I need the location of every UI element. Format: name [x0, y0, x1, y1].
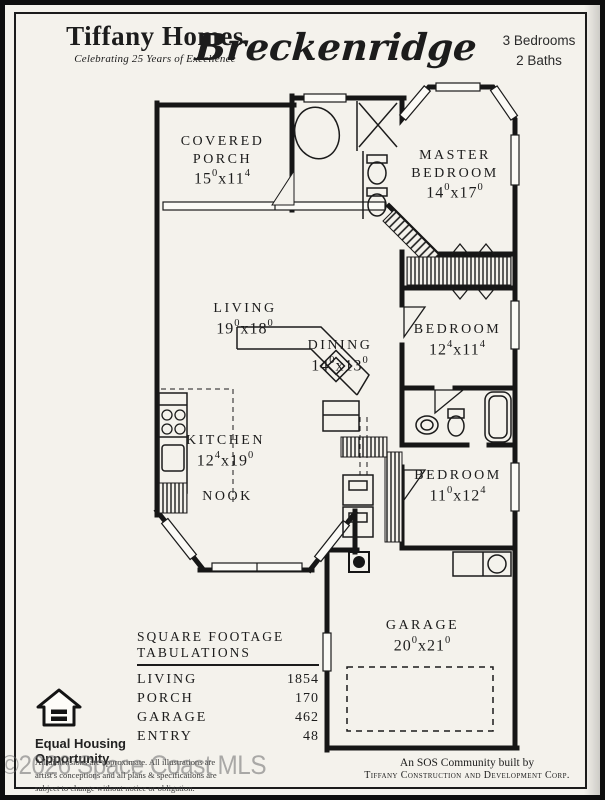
room-dimensions: 110x124 — [403, 486, 513, 505]
tub-icon — [289, 102, 345, 164]
room-dimensions: 200x210 — [365, 636, 480, 655]
room-dimensions: 190x180 — [185, 319, 305, 338]
builder-credit: An SOS Community built by Tiffany Constr… — [343, 757, 591, 781]
utility-closet — [453, 552, 511, 576]
table-row: GARAGE 462 — [137, 709, 319, 728]
disclaimer-line: subject to change without notice or obli… — [35, 782, 325, 795]
toilet-icon — [368, 162, 386, 184]
sink-icon — [416, 416, 438, 434]
master-bath-fixtures — [289, 101, 397, 219]
square-footage-table: SQUARE FOOTAGE TABULATIONS LIVING 1854 P… — [137, 629, 319, 747]
table-row: LIVING 1854 — [137, 671, 319, 690]
room-label-master-bedroom: MASTER BEDROOM 140x170 — [390, 147, 520, 202]
entry-column — [349, 552, 369, 572]
room-label-living: LIVING 190x180 — [185, 300, 305, 338]
room-dimensions: 124x190 — [163, 451, 288, 470]
room-label-kitchen: KITCHEN 124x190 — [163, 432, 288, 470]
room-dimensions: 140x130 — [280, 356, 400, 375]
room-label-covered-porch: COVERED PORCH 150x114 — [160, 133, 285, 188]
room-dimensions: 150x114 — [160, 169, 285, 188]
equal-housing-house-icon — [35, 687, 83, 729]
toilet-icon — [448, 416, 464, 436]
room-dimensions: 124x114 — [400, 340, 515, 359]
mls-watermark: ©2026 Space Coast MLS — [1, 750, 266, 781]
hall-bath-fixtures — [416, 392, 511, 442]
room-label-nook: NOOK — [170, 488, 285, 506]
garage-apron-dashed — [347, 667, 493, 731]
water-heater-icon — [488, 555, 506, 573]
room-label-bedroom-2: BEDROOM 124x114 — [400, 321, 515, 359]
table-rule — [137, 664, 319, 666]
room-label-bedroom-3: BEDROOM 110x124 — [403, 467, 513, 505]
shower-icon — [359, 103, 397, 147]
table-row: ENTRY 48 — [137, 728, 319, 747]
room-label-dining: DINING 140x130 — [280, 337, 400, 375]
table-row: PORCH 170 — [137, 690, 319, 709]
room-dimensions: 140x170 — [390, 183, 520, 202]
room-label-garage: GARAGE 200x210 — [365, 617, 480, 655]
stove-icon — [162, 410, 185, 434]
floor-plan-sheet: Tiffany Homes Celebrating 25 Years of Ex… — [0, 0, 605, 800]
table-title: SQUARE FOOTAGE TABULATIONS — [137, 629, 319, 661]
